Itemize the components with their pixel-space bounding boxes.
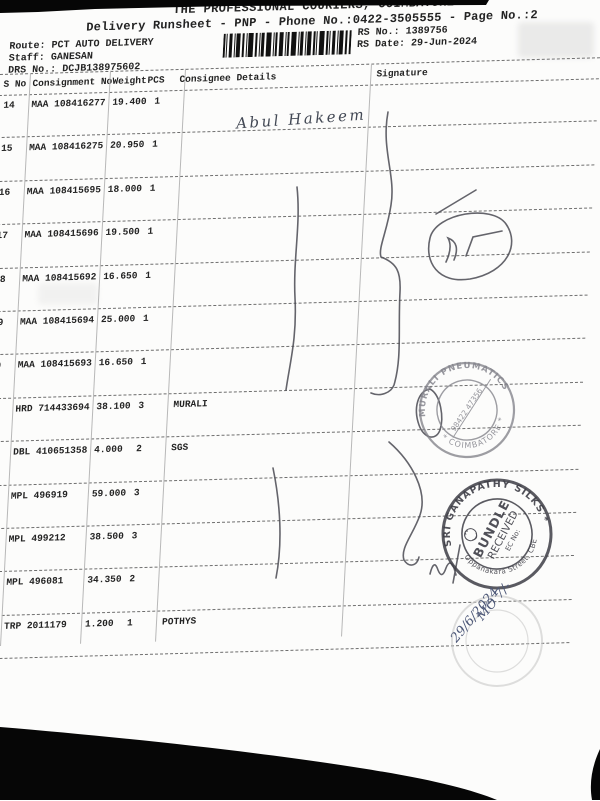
cell-consignment-no: MAA 108415695	[27, 184, 102, 197]
cell-sno: 17	[0, 230, 8, 241]
rs-no-label: RS No.:	[357, 27, 400, 39]
rs-no-value: 1389756	[405, 25, 448, 37]
cell-weight: 16.650	[98, 357, 133, 369]
cell-pcs: 1	[150, 182, 156, 193]
cell-weight: 38.500	[89, 530, 124, 542]
cell-sno: 14	[3, 100, 15, 111]
col-signature: Signature	[376, 67, 428, 79]
cell-pcs: 2	[136, 443, 142, 454]
cell-consignment-no: MAA 108415694	[20, 314, 95, 327]
staff-value: GANESAN	[51, 51, 94, 63]
cell-consignment-no: HRD 714433694	[15, 401, 90, 414]
col-consignee: Consignee Details	[179, 71, 276, 85]
cell-weight: 38.100	[96, 400, 131, 412]
stamp-phone: 98422 47356	[449, 386, 485, 433]
cell-pcs: 1	[152, 139, 158, 150]
scan-edge-right	[591, 749, 600, 800]
cell-consignee: MURALI	[173, 398, 208, 410]
cell-pcs: 1	[140, 356, 146, 367]
route-field: Route: PCT AUTO DELIVERY	[9, 38, 154, 53]
cell-weight: 4.000	[94, 444, 123, 456]
cell-pcs: 1	[145, 269, 151, 280]
cell-sno: 15	[1, 143, 13, 154]
cell-pcs: 1	[143, 313, 149, 324]
cell-pcs: 1	[127, 617, 133, 628]
col-weight: Weight	[112, 75, 147, 87]
cell-sno: 18	[0, 273, 6, 284]
cell-weight: 25.000	[101, 313, 136, 325]
cell-weight: 1.200	[85, 618, 114, 630]
col-sno: S No	[3, 78, 26, 90]
rs-date-field: RS Date: 29-Jun-2024	[357, 37, 478, 51]
scanned-page: THE PROFESSIONAL COURIERS, COIMBATORE De…	[0, 0, 600, 800]
col-consignment: Consignment No	[32, 76, 112, 89]
cell-consignee: SGS	[171, 442, 189, 453]
rs-date-value: 29-Jun-2024	[411, 37, 478, 50]
rs-date-label: RS Date:	[357, 39, 406, 51]
cell-weight: 20.950	[110, 139, 145, 151]
route-value: PCT AUTO DELIVERY	[51, 38, 154, 52]
cell-consignment-no: TRP 2011179	[4, 619, 67, 632]
cell-weight: 18.000	[108, 183, 143, 195]
cell-weight: 19.400	[112, 96, 147, 108]
cell-consignee: POTHYS	[162, 615, 197, 627]
cell-weight: 59.000	[92, 487, 127, 499]
cell-pcs: 1	[147, 226, 153, 237]
cell-sno: 20	[0, 360, 1, 371]
cell-sno: 16	[0, 186, 10, 197]
svg-text:* COIMBATORE *: * COIMBATORE *	[438, 413, 512, 459]
cell-sno: 19	[0, 317, 4, 328]
cell-pcs: 3	[131, 530, 137, 541]
scan-smudge	[518, 22, 594, 58]
cell-consignment-no: MAA 108415696	[24, 227, 99, 240]
col-pcs: PCS	[147, 74, 165, 85]
cell-weight: 19.500	[105, 226, 140, 238]
cell-pcs: 3	[134, 487, 140, 498]
staff-label: Staff:	[8, 53, 45, 65]
route-label: Route:	[9, 41, 46, 53]
cell-weight: 34.350	[87, 574, 122, 586]
stamp-arc-bottom: * COIMBATORE *	[438, 413, 512, 459]
cell-consignment-no: MAA 108415692	[22, 271, 97, 284]
cell-consignment-no: DBL 410651358	[13, 445, 88, 458]
cell-consignment-no: MPL 496919	[11, 489, 69, 502]
cell-pcs: 1	[154, 96, 160, 107]
cell-pcs: 2	[129, 574, 135, 585]
barcode	[223, 30, 352, 58]
cell-consignment-no: MAA 108416275	[29, 140, 104, 153]
cell-consignment-no: MPL 499212	[8, 532, 66, 545]
cell-consignment-no: MAA 108416277	[31, 97, 106, 110]
cell-consignment-no: MPL 496081	[6, 576, 64, 589]
scan-smudge	[38, 283, 98, 305]
cell-pcs: 3	[138, 400, 144, 411]
cell-consignment-no: MAA 108415693	[17, 358, 92, 371]
cell-weight: 16.650	[103, 270, 138, 282]
